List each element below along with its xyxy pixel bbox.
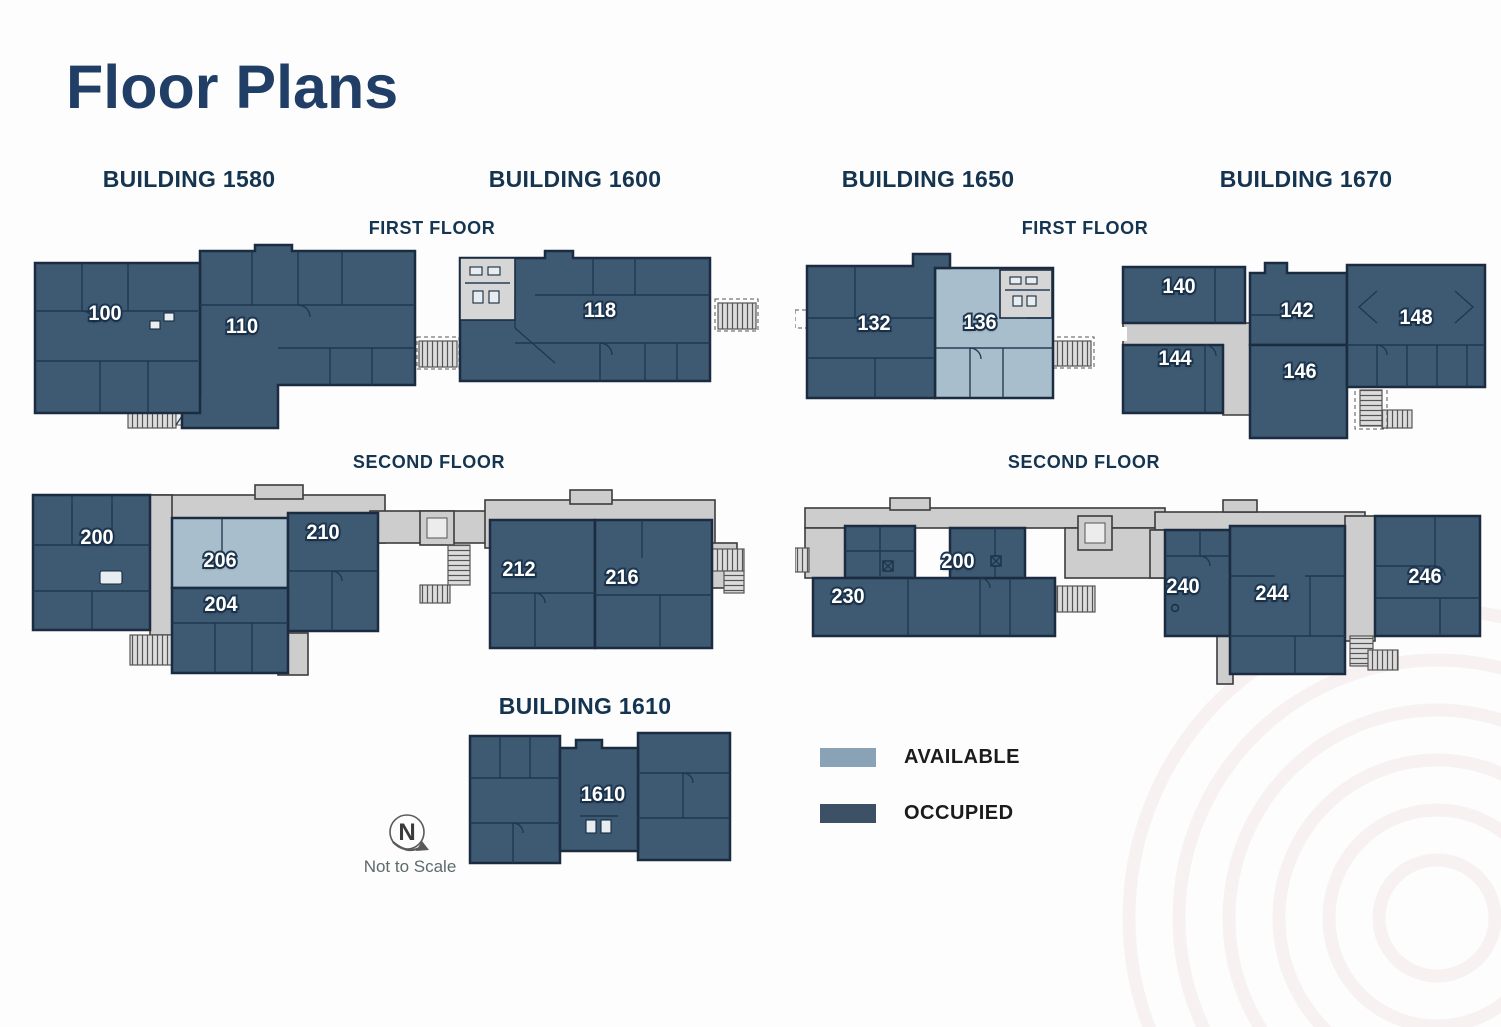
suite-label-146: 146 xyxy=(1283,360,1316,384)
not-to-scale-note: Not to Scale xyxy=(355,857,465,877)
building-1670-header: BUILDING 1670 xyxy=(1176,166,1436,193)
suite-1610-right-wing xyxy=(638,733,730,860)
second-floor-label-right: SECOND FLOOR xyxy=(974,452,1194,473)
available-swatch xyxy=(820,748,876,767)
suite-100-area xyxy=(35,263,200,413)
floorplan-second-floor-right xyxy=(795,486,1495,701)
suite-label-246: 246 xyxy=(1408,565,1441,589)
building-1650-header: BUILDING 1650 xyxy=(798,166,1058,193)
stairs-1600-left xyxy=(419,341,457,367)
page-title: Floor Plans xyxy=(66,52,398,122)
suite-label-118: 118 xyxy=(584,299,616,323)
suite-label-148: 148 xyxy=(1399,306,1432,330)
suite-label-144: 144 xyxy=(1158,347,1191,371)
suite-label-100: 100 xyxy=(88,302,121,326)
north-letter: N xyxy=(398,819,415,846)
suite-label-110: 110 xyxy=(226,315,258,339)
legend: AVAILABLE OCCUPIED xyxy=(820,744,1020,856)
stairs-1650-second-right xyxy=(1057,586,1095,612)
first-floor-label-right: FIRST FLOOR xyxy=(975,218,1195,239)
stairs-1670-first xyxy=(1360,390,1382,426)
suite-label-206: 206 xyxy=(203,549,236,573)
suite-label-230: 230 xyxy=(831,585,864,609)
stairs-1650-second-left xyxy=(795,548,809,572)
suite-label-132: 132 xyxy=(857,312,890,336)
stairs-second-left-bridge xyxy=(448,545,470,585)
building-1600-header: BUILDING 1600 xyxy=(445,166,705,193)
floor-plans-page: Floor Plans BUILDING 1580 BUILDING 1600 … xyxy=(0,0,1501,1027)
second-floor-label-left: SECOND FLOOR xyxy=(319,452,539,473)
building-1580-header: BUILDING 1580 xyxy=(59,166,319,193)
suite-212-area xyxy=(490,520,595,648)
restroom-fixture xyxy=(586,820,596,833)
suite-label-244: 244 xyxy=(1255,582,1288,606)
building-1610-header: BUILDING 1610 xyxy=(455,693,715,720)
suite-label-212: 212 xyxy=(502,558,535,582)
suite-146-area xyxy=(1250,345,1347,438)
floorplan-building-1580-first-floor xyxy=(30,243,420,438)
occupied-label: OCCUPIED xyxy=(904,802,1014,825)
legend-available-row: AVAILABLE xyxy=(820,744,1020,770)
suite-label-1610: 1610 xyxy=(581,783,625,807)
suite-label-142: 142 xyxy=(1280,299,1313,323)
suite-label-240: 240 xyxy=(1166,575,1199,599)
stairs-second-left-bottom xyxy=(130,635,174,665)
suite-label-200-1580: 200 xyxy=(80,526,113,550)
suite-label-216: 216 xyxy=(605,566,638,590)
suite-label-140: 140 xyxy=(1162,275,1195,299)
first-floor-label-left: FIRST FLOOR xyxy=(322,218,542,239)
stairs-second-left-right-lower xyxy=(724,571,744,593)
suite-1610-left-wing xyxy=(470,736,560,863)
stairs-second-left-bridge-lower xyxy=(420,585,450,603)
floorplan-building-1650-first-floor xyxy=(795,246,1115,411)
legend-occupied-row: OCCUPIED xyxy=(820,800,1020,826)
occupied-swatch xyxy=(820,804,876,823)
stairs-1670-second-lower xyxy=(1368,650,1398,670)
stairs-1600-right xyxy=(718,303,756,329)
restroom-fixture xyxy=(601,820,611,833)
floorplan-second-floor-left xyxy=(30,483,770,683)
suite-label-210: 210 xyxy=(306,521,339,545)
available-label: AVAILABLE xyxy=(904,746,1020,769)
suite-label-200-1650: 200 xyxy=(941,550,974,574)
stairs-1650 xyxy=(1053,341,1091,366)
floorplan-building-1600-first-floor xyxy=(415,243,760,403)
suite-label-136: 136 xyxy=(963,311,996,335)
suite-label-204: 204 xyxy=(204,593,237,617)
